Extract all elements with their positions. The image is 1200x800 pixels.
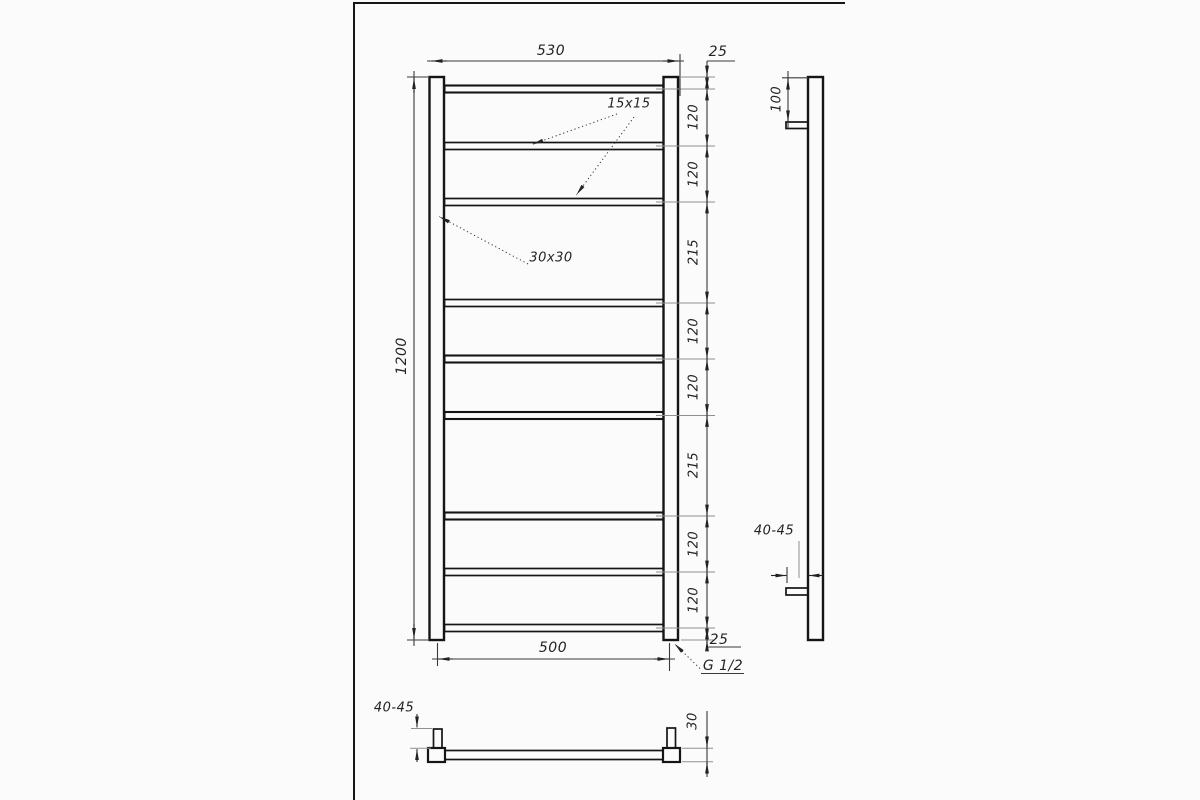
sheet-frame <box>354 3 845 800</box>
dim-bottom-offset-label: 25 <box>710 632 729 648</box>
dim-spacing-5-label: 120 <box>687 374 702 400</box>
bottom-depth-label: 30 <box>686 712 701 730</box>
dim-spacing-2-label: 120 <box>687 161 702 187</box>
thread-size-label: G 1/2 <box>703 658 743 674</box>
drawing-sheet: 530 25 120 120 215 120 120 215 120 120 1… <box>0 0 1200 800</box>
bottom-view-linework <box>428 728 680 762</box>
dim-spacing-8-label: 120 <box>687 587 702 613</box>
post-tube-size-label: 30x30 <box>529 251 572 266</box>
dim-top-offset-label: 25 <box>709 44 728 60</box>
dim-height-label: 1200 <box>394 337 410 375</box>
drawing-linework <box>0 0 1200 800</box>
front-view-linework <box>430 77 679 640</box>
dim-spacing-6-label: 215 <box>687 452 702 478</box>
dim-spacing-7-label: 120 <box>687 531 702 557</box>
side-wall-distance-label: 40-45 <box>754 524 794 539</box>
dim-bottom-width-label: 500 <box>539 640 567 656</box>
dim-spacing-1-label: 120 <box>687 104 702 130</box>
dim-spacing-3-label: 215 <box>687 239 702 265</box>
bottom-wall-distance-label: 40-45 <box>374 701 414 716</box>
front-view-dimensions <box>407 54 744 674</box>
dim-spacing-4-label: 120 <box>687 318 702 344</box>
side-inlet-offset-label: 100 <box>770 86 785 112</box>
side-view-linework <box>786 77 823 640</box>
dim-top-width-label: 530 <box>537 43 565 59</box>
rung-tube-size-label: 15x15 <box>607 97 650 112</box>
